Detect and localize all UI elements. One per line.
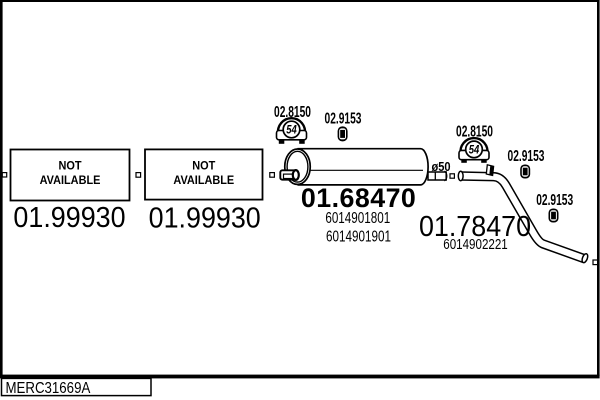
svg-text:01.99930: 01.99930	[13, 201, 125, 233]
svg-text:02.9153: 02.9153	[508, 147, 545, 165]
svg-text:NOT: NOT	[192, 160, 215, 172]
svg-text:02.9153: 02.9153	[325, 109, 362, 127]
svg-text:AVAILABLE: AVAILABLE	[40, 175, 101, 187]
svg-text:01.99930: 01.99930	[149, 202, 261, 234]
svg-text:6014901801: 6014901801	[325, 208, 390, 226]
svg-text:NOT: NOT	[58, 160, 81, 172]
svg-text:54: 54	[469, 144, 480, 157]
svg-text:02.9153: 02.9153	[536, 191, 573, 209]
svg-text:6014902221: 6014902221	[443, 236, 507, 253]
svg-text:AVAILABLE: AVAILABLE	[173, 175, 234, 187]
svg-text:54: 54	[286, 124, 297, 137]
svg-text:6014901901: 6014901901	[326, 227, 391, 245]
svg-text:MERC31669A: MERC31669A	[6, 380, 91, 397]
